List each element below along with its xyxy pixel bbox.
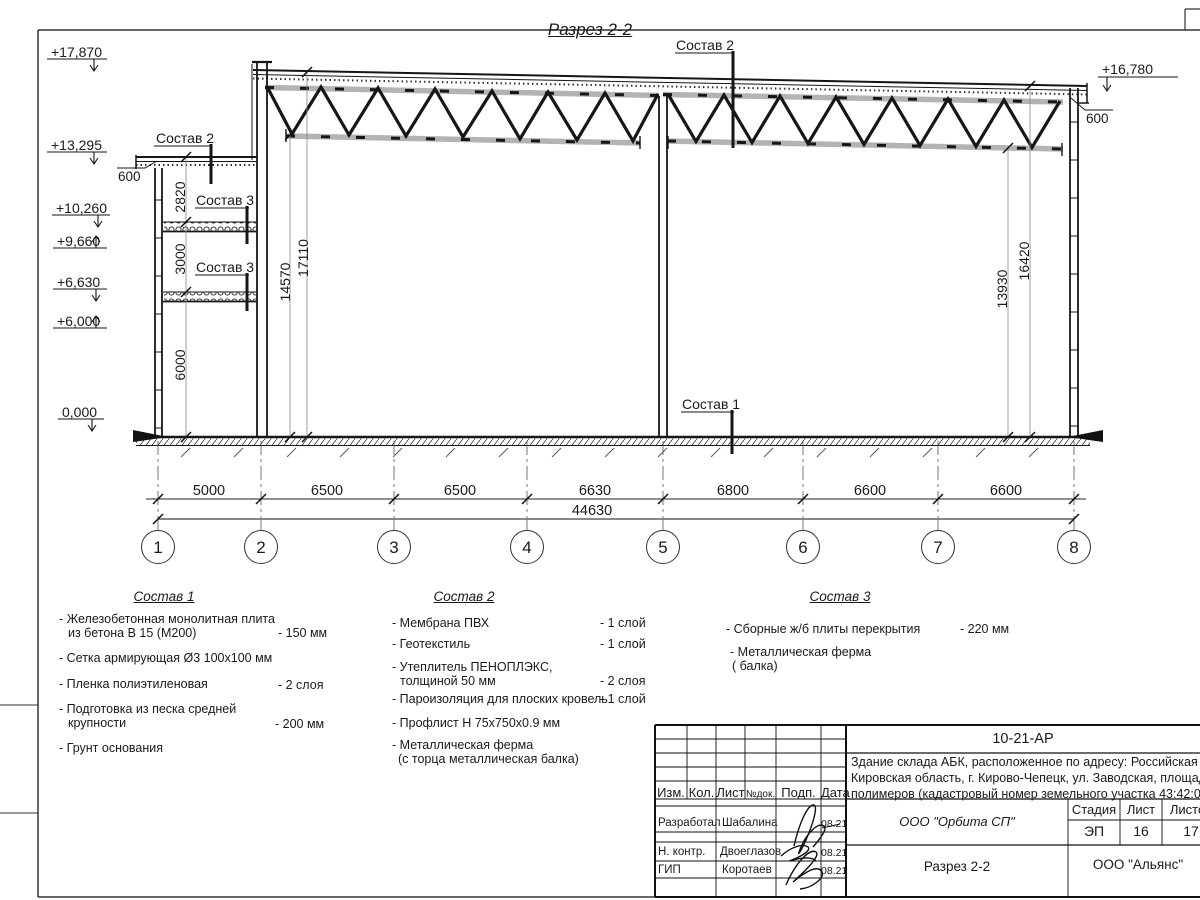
- titleblock-sheet-value: 16: [1120, 824, 1162, 840]
- hdim-segment: 5000: [174, 483, 244, 499]
- columns-walls: [155, 62, 1078, 437]
- legend1-value: - 200 мм: [275, 717, 324, 731]
- legend1-value: - 150 мм: [278, 626, 327, 640]
- legend1-value: - 2 слоя: [278, 678, 323, 692]
- callout-sostav2-annex: Состав 2: [156, 131, 214, 147]
- titleblock-description-line: полимеров (кадастровый номер земельного …: [851, 787, 1200, 801]
- titleblock-stage-value: ЭП: [1068, 824, 1120, 840]
- elevation-label: +9,660: [57, 234, 100, 250]
- grid-bubble-label: 3: [377, 538, 411, 557]
- legend2-value: - 2 слоя: [600, 674, 645, 688]
- grid-bubble-label: 7: [921, 538, 955, 557]
- titleblock-row-name: Коротаев: [722, 864, 772, 877]
- titleblock-row-date: 08.21: [821, 848, 846, 860]
- titleblock-row-name: Двоеглазов: [720, 846, 781, 859]
- titleblock-row-date: 08.21: [821, 866, 846, 878]
- legend3-item: - Металлическая ферма: [730, 645, 871, 659]
- legend2-item: - Металлическая ферма: [392, 738, 533, 752]
- ground-slab: [133, 430, 1103, 457]
- hdim-segment: 6630: [560, 483, 630, 499]
- titleblock-col-podp: Подп.: [776, 786, 821, 801]
- elevation-label: +13,295: [51, 138, 102, 154]
- titleblock-col-ndoc: №док.: [745, 789, 776, 800]
- legend2-item: - Мембрана ПВХ: [392, 616, 489, 630]
- titleblock-org: ООО "Орбита СП": [846, 815, 1068, 830]
- titleblock-description-line: Здание склада АБК, расположенное по адре…: [851, 755, 1200, 769]
- legend1-item: - Сетка армирующая Ø3 100x100 мм: [59, 651, 272, 665]
- legend2-value: - 1 слой: [600, 692, 646, 706]
- titleblock-sheets-label: Листов: [1162, 803, 1200, 818]
- titleblock-row-name: Шабалина: [722, 817, 778, 830]
- legend1-item: из бетона В 15 (М200): [68, 626, 196, 640]
- hdim-segment: 6600: [835, 483, 905, 499]
- titleblock-col-kol: Кол.: [687, 786, 716, 801]
- elevation-label: +10,260: [56, 201, 107, 217]
- vdim-3000: 3000: [173, 243, 189, 274]
- elevation-label: +6,630: [57, 275, 100, 291]
- titleblock-col-list: Лист: [716, 786, 745, 801]
- hdim-segment: 6500: [292, 483, 362, 499]
- roof-truss: [265, 87, 1063, 157]
- titleblock-row-role: Разработал: [658, 817, 721, 830]
- callout-sostav1-slab: Состав 1: [682, 397, 740, 413]
- legend1-item: - Железобетонная монолитная плита: [59, 612, 275, 626]
- legend1-heading: Состав 1: [126, 589, 202, 604]
- elevation-label: 0,000: [62, 405, 97, 421]
- elevation-label: +6,000: [57, 314, 100, 330]
- legend2-item: (с торца металлическая балка): [398, 752, 579, 766]
- vdim-14570: 14570: [278, 263, 294, 302]
- legend2-item: толщиной 50 мм: [400, 674, 496, 688]
- titleblock-sheets-value: 17: [1162, 824, 1200, 840]
- drawing-sheet: Разрез 2-2 Состав 2 Состав 2 Состав 3 Со…: [0, 0, 1200, 900]
- legend3-heading: Состав 3: [802, 589, 878, 604]
- titleblock-doc-title: Разрез 2-2: [846, 859, 1068, 874]
- titleblock-row-role: Н. контр.: [658, 846, 705, 859]
- legend1-item: - Пленка полиэтиленовая: [59, 677, 208, 691]
- titleblock-company: ООО "Альянс": [1068, 857, 1200, 872]
- titleblock-col-izm: Изм.: [655, 786, 687, 801]
- hdim-segment: 6800: [698, 483, 768, 499]
- titleblock-col-data: Дата: [821, 786, 846, 801]
- titleblock-description-line: Кировская область, г. Кирово-Чепецк, ул.…: [851, 771, 1200, 785]
- legend2-heading: Состав 2: [426, 589, 502, 604]
- legend2-item: - Профлист Н 75х750х0.9 мм: [392, 716, 560, 730]
- legend3-value: - 220 мм: [960, 622, 1009, 636]
- drawing-title: Разрез 2-2: [530, 20, 650, 39]
- vdim-6000: 6000: [173, 349, 189, 380]
- hdim-total: 44630: [552, 503, 632, 519]
- titleblock-stage-label: Стадия: [1068, 803, 1120, 818]
- grid-bubble-label: 5: [646, 538, 680, 557]
- grid-bubble-label: 8: [1057, 538, 1091, 557]
- signature-gip: [786, 851, 822, 889]
- grid-bubble-label: 6: [786, 538, 820, 557]
- titleblock-row-date: 08.21: [821, 819, 846, 831]
- titleblock-sheet-label: Лист: [1120, 803, 1162, 818]
- legend1-item: - Подготовка из песка средней: [59, 702, 236, 716]
- legend3-item: - Сборные ж/б плиты перекрытия: [726, 622, 920, 636]
- legend3-item: ( балка): [732, 659, 778, 673]
- grid-bubble-label: 2: [244, 538, 278, 557]
- callout-sostav3-lower: Состав 3: [196, 260, 254, 276]
- elevation-label: +17,870: [51, 45, 102, 61]
- grid-bubble-label: 4: [510, 538, 544, 557]
- vdim-17110: 17110: [296, 239, 312, 277]
- legend2-item: - Геотекстиль: [392, 637, 470, 651]
- vdim-2820: 2820: [173, 181, 189, 212]
- vdim-16420: 16420: [1017, 242, 1033, 281]
- callout-sostav2-roof: Состав 2: [676, 38, 734, 54]
- grid-bubble-label: 1: [141, 538, 175, 557]
- dim-600-left: 600: [118, 169, 141, 184]
- vdim-13930: 13930: [995, 270, 1011, 309]
- legend1-item: - Грунт основания: [59, 741, 163, 755]
- legend1-item: крупности: [68, 716, 126, 730]
- hdim-segment: 6500: [425, 483, 495, 499]
- titleblock-row-role: ГИП: [658, 864, 681, 877]
- titleblock-doc-number: 10-21-АР: [846, 731, 1200, 747]
- dim-600-right: 600: [1086, 111, 1109, 126]
- legend2-item: - Утеплитель ПЕНОПЛЭКС,: [392, 660, 552, 674]
- callout-sostav3-upper: Состав 3: [196, 193, 254, 209]
- elevation-label-right: +16,780: [1102, 62, 1153, 78]
- legend2-value: - 1 слой: [600, 616, 646, 630]
- legend2-item: - Пароизоляция для плоских кровель: [392, 692, 608, 706]
- hdim-segment: 6600: [971, 483, 1041, 499]
- legend2-value: - 1 слой: [600, 637, 646, 651]
